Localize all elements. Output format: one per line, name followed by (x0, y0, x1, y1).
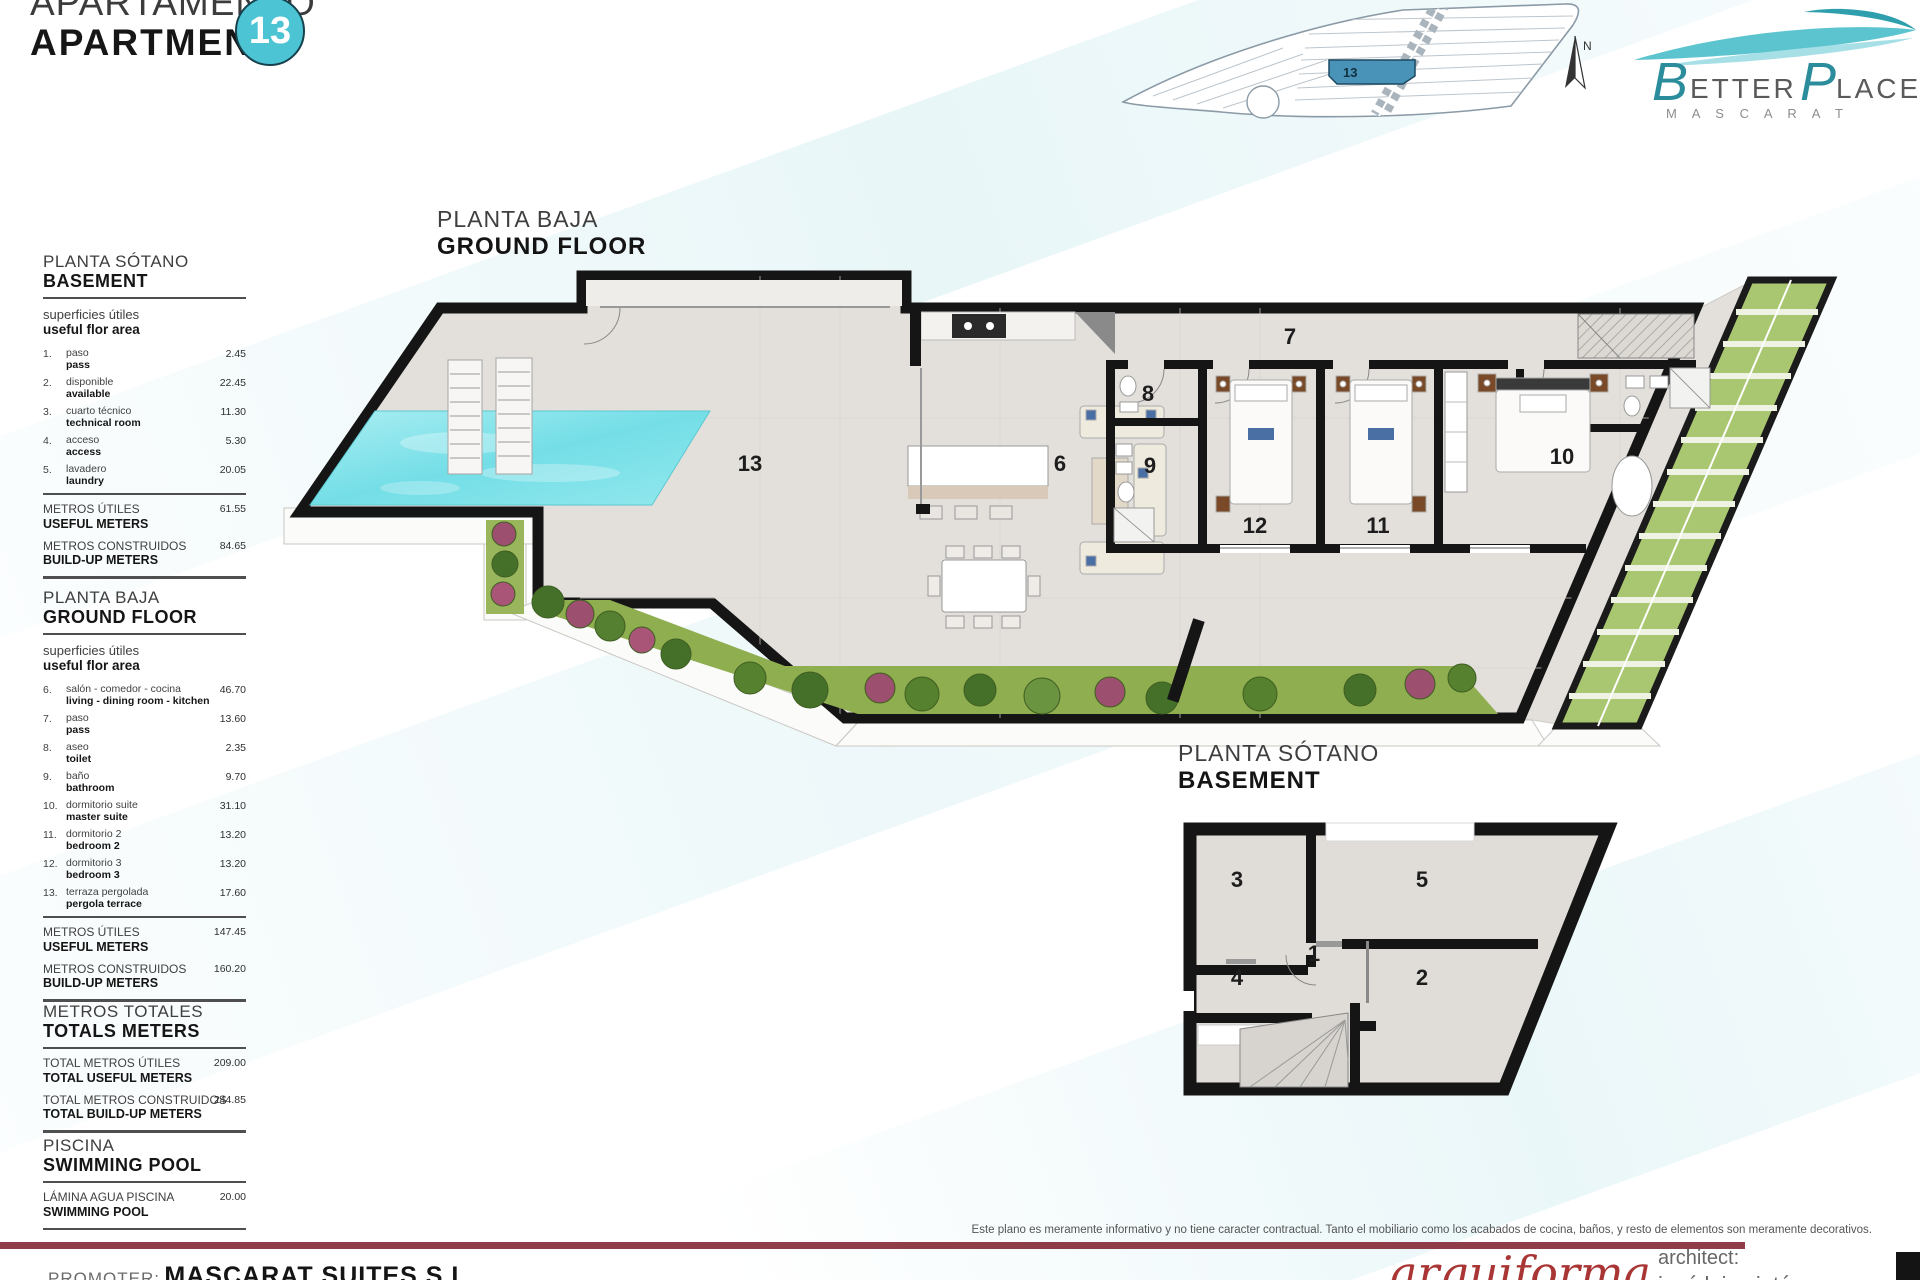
door-sill (1226, 959, 1256, 964)
divider (43, 493, 246, 495)
row-num: 13. (43, 887, 58, 899)
total-value: 61.55 (220, 503, 246, 515)
row-num: 9. (43, 771, 52, 783)
logo-word-lace: LACE (1836, 73, 1918, 104)
subtitle-es: superficies útiles (43, 307, 246, 322)
divider (43, 1047, 246, 1049)
row-num: 1. (43, 348, 52, 360)
row-num: 11. (43, 829, 57, 841)
row-num: 4. (43, 435, 52, 447)
promoter-label: PROMOTER: (48, 1269, 160, 1280)
total-label-es: METROS CONSTRUIDOS (43, 540, 246, 554)
promoter-name: MASCARAT SUITES S.L. (164, 1262, 475, 1280)
total-label-en: TOTAL USEFUL METERS (43, 1071, 246, 1085)
area-row: 11. dormitorio 2 bedroom 2 13.20 (43, 829, 246, 852)
plan-title-en: GROUND FLOOR (437, 235, 646, 259)
area-row: 12. dormitorio 3 bedroom 3 13.20 (43, 858, 246, 881)
row-label-es: acceso (66, 435, 246, 447)
room-label-bed2: 11 (1366, 513, 1389, 538)
row-num: 2. (43, 377, 52, 389)
divider (43, 1181, 246, 1183)
total-row: TOTAL METROS CONSTRUIDOS TOTAL BUILD-UP … (43, 1094, 246, 1122)
plan-title-es: PLANTA SÓTANO (1178, 742, 1379, 765)
total-value: 160.20 (214, 963, 246, 975)
disclaimer-text: Este plano es meramente informativo y no… (972, 1224, 1872, 1236)
row-label-en: pass (66, 360, 246, 372)
closet (1445, 372, 1467, 492)
row-value: 2.35 (226, 742, 246, 754)
divider (43, 916, 246, 918)
total-value: 147.45 (214, 926, 246, 938)
row-value: 13.20 (220, 858, 246, 870)
area-row: 5. lavadero laundry 20.05 (43, 464, 246, 487)
room-label-pass: 7 (1284, 324, 1296, 349)
sidebar-section-totals: METROS TOTALES TOTALS METERS TOTAL METRO… (43, 1002, 246, 1141)
plan-title-es: PLANTA BAJA (437, 208, 646, 231)
area-row: 7. paso pass 13.60 (43, 713, 246, 736)
area-row: 13. terraza pergolada pergola terrace 17… (43, 887, 246, 910)
subtitle-en: useful flor area (43, 658, 246, 674)
total-row: TOTAL METROS ÚTILES TOTAL USEFUL METERS … (43, 1057, 246, 1085)
room-label-toilet: 8 (1142, 381, 1154, 406)
site-unit-highlight (1329, 60, 1415, 84)
row-value: 11.30 (221, 406, 247, 418)
area-row: 6. salón - comedor - cocina living - din… (43, 684, 246, 707)
row-value: 9.70 (226, 771, 246, 783)
unit-number: 13 (249, 10, 291, 53)
row-label-en: pergola terrace (66, 899, 246, 911)
architect-block: architect: josé luis pintó (1658, 1248, 1791, 1280)
row-value: 22.45 (220, 377, 246, 389)
stool (955, 506, 977, 519)
room-label-living: 6 (1054, 451, 1066, 476)
area-row: 10. dormitorio suite master suite 31.10 (43, 800, 246, 823)
total-row: METROS CONSTRUIDOS BUILD-UP METERS 84.65 (43, 540, 246, 568)
stairs (1578, 314, 1694, 358)
total-label-en: BUILD-UP METERS (43, 976, 246, 990)
row-label-es: baño (66, 771, 246, 783)
logo-subtitle: M A S C A R A T (1666, 106, 1849, 121)
row-label-es: aseo (66, 742, 246, 754)
total-row: LÁMINA AGUA PISCINA SWIMMING POOL 20.00 (43, 1191, 246, 1219)
area-row: 8. aseo toilet 2.35 (43, 742, 246, 765)
row-num: 3. (43, 406, 52, 418)
section-title-es: PISCINA (43, 1136, 246, 1155)
wall-notch (1182, 991, 1194, 1011)
sidebar-section-basement: PLANTA SÓTANO BASEMENT superficies útile… (43, 252, 246, 587)
room-label-5: 5 (1416, 867, 1428, 892)
section-title-es: PLANTA BAJA (43, 588, 246, 607)
area-row: 1. paso pass 2.45 (43, 348, 246, 371)
area-row: 4. acceso access 5.30 (43, 435, 246, 458)
bed-room11 (1336, 376, 1426, 512)
row-label-en: available (66, 389, 246, 401)
section-title-en: GROUND FLOOR (43, 607, 246, 627)
room-label-3: 3 (1231, 867, 1243, 892)
row-num: 12. (43, 858, 58, 870)
row-value: 31.10 (220, 800, 246, 812)
stool (990, 506, 1012, 519)
basement-plan: 3 5 1 4 2 (1180, 815, 1650, 1115)
north-compass-icon: N (1565, 36, 1592, 88)
row-value: 13.20 (220, 829, 246, 841)
site-locator-plan: 13 N (1113, 0, 1613, 133)
sidebar-section-pool: PISCINA SWIMMING POOL LÁMINA AGUA PISCIN… (43, 1136, 246, 1238)
row-num: 6. (43, 684, 52, 696)
row-value: 17.60 (220, 887, 246, 899)
north-label: N (1583, 39, 1592, 53)
total-label-en: USEFUL METERS (43, 940, 246, 954)
row-num: 5. (43, 464, 52, 476)
row-num: 8. (43, 742, 52, 754)
divider (43, 1228, 246, 1230)
room-label-1: 1 (1308, 941, 1320, 966)
basement-top-opening (1326, 823, 1474, 841)
row-label-en: laundry (66, 476, 246, 488)
row-label-en: bedroom 2 (66, 841, 246, 853)
total-value: 84.65 (220, 540, 246, 552)
architect-name: josé luis pintó (1658, 1274, 1791, 1280)
total-value: 209.00 (214, 1057, 246, 1069)
ground-floor-plan: 13 6 7 8 9 12 11 10 (280, 268, 1860, 748)
total-value: 20.00 (220, 1191, 246, 1203)
total-row: METROS CONSTRUIDOS BUILD-UP METERS 160.2… (43, 963, 246, 991)
divider (43, 633, 246, 635)
logo-word-etter: ETTER (1690, 73, 1797, 104)
area-row: 3. cuarto técnico technical room 11.30 (43, 406, 246, 429)
row-value: 20.05 (220, 464, 246, 476)
subtitle-es: superficies útiles (43, 643, 246, 658)
row-label-es: cuarto técnico (66, 406, 246, 418)
section-title-es: PLANTA SÓTANO (43, 252, 246, 271)
total-value: 244.85 (214, 1094, 246, 1106)
bed-master (1478, 374, 1608, 472)
row-value: 5.30 (226, 435, 246, 447)
section-title-es: METROS TOTALES (43, 1002, 246, 1021)
kitchen-island (908, 446, 1048, 486)
row-num: 7. (43, 713, 52, 725)
total-row: METROS ÚTILES USEFUL METERS 147.45 (43, 926, 246, 954)
subtitle-en: useful flor area (43, 322, 246, 338)
row-value: 46.70 (220, 684, 246, 696)
section-title-en: TOTALS METERS (43, 1021, 246, 1041)
basement-heading: PLANTA SÓTANO BASEMENT (1178, 742, 1379, 793)
logo-letter-b: B (1652, 52, 1688, 112)
total-label-en: BUILD-UP METERS (43, 553, 246, 567)
thin-partition (1366, 941, 1369, 1003)
promoter-line: PROMOTER: MASCARAT SUITES S.L. (48, 1262, 476, 1280)
row-label-en: bathroom (66, 783, 246, 795)
row-label-en: bedroom 3 (66, 870, 246, 882)
room-label-bed3: 12 (1243, 513, 1267, 538)
section-title-en: SWIMMING POOL (43, 1155, 246, 1175)
divider (43, 297, 246, 299)
total-label-en: USEFUL METERS (43, 517, 246, 531)
row-label-en: access (66, 447, 246, 459)
total-label-en: SWIMMING POOL (43, 1205, 246, 1219)
room-label-master: 10 (1550, 444, 1574, 469)
row-value: 13.60 (220, 713, 246, 725)
architect-label: architect: (1658, 1248, 1791, 1268)
plan-title-en: BASEMENT (1178, 769, 1379, 793)
logo-letter-p: P (1800, 52, 1836, 112)
divider (43, 576, 246, 579)
ground-floor-heading: PLANTA BAJA GROUND FLOOR (437, 208, 646, 259)
room-label-4: 4 (1231, 965, 1244, 990)
section-title-en: BASEMENT (43, 271, 246, 291)
area-row: 9. baño bathroom 9.70 (43, 771, 246, 794)
brand-logo: B ETTER P LACE M A S C A R A T (1632, 4, 1918, 129)
bed-room12 (1216, 376, 1306, 512)
row-label-es: paso (66, 348, 246, 360)
row-label-en: toilet (66, 754, 246, 766)
room-label-bath: 9 (1144, 453, 1156, 478)
room-label-terrace: 13 (738, 451, 762, 476)
site-unit-label: 13 (1343, 65, 1357, 80)
site-culdesac (1247, 86, 1279, 118)
row-num: 10. (43, 800, 58, 812)
plan-sheet: APARTAMENTO APARTMENT 13 (0, 0, 1920, 1280)
row-label-en: pass (66, 725, 246, 737)
row-label-en: living - dining room - kitchen (66, 696, 246, 708)
total-row: METROS ÚTILES USEFUL METERS 61.55 (43, 503, 246, 531)
row-value: 2.45 (226, 348, 246, 360)
total-label-es: LÁMINA AGUA PISCINA (43, 1191, 246, 1205)
brand-logo-drawing: B ETTER P LACE M A S C A R A T (1632, 4, 1918, 124)
room-label-2: 2 (1416, 965, 1428, 990)
area-row: 2. disponible available 22.45 (43, 377, 246, 400)
total-label-en: TOTAL BUILD-UP METERS (43, 1107, 246, 1121)
corner-block (1896, 1252, 1920, 1280)
architect-firm-logo: arquiforma (1390, 1250, 1651, 1280)
row-label-en: master suite (66, 812, 246, 824)
sidebar-section-ground-floor: PLANTA BAJA GROUND FLOOR superficies úti… (43, 588, 246, 1010)
total-label-es: METROS ÚTILES (43, 503, 246, 517)
entry-vestibule (586, 280, 902, 306)
divider (43, 1130, 246, 1133)
row-label-en: technical room (66, 418, 246, 430)
site-locator-drawing: 13 N (1113, 0, 1613, 128)
